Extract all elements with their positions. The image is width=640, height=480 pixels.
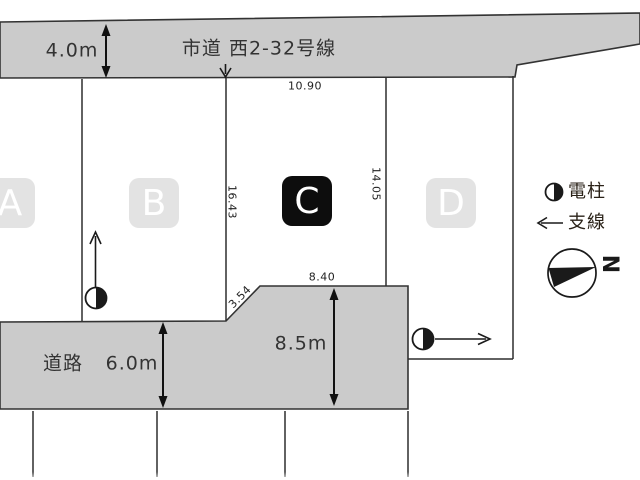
- lot-badge-d: D: [426, 178, 476, 228]
- bottom-fade: [0, 472, 640, 480]
- lot-c-label: C: [294, 181, 319, 222]
- dim-lot-c-left: 16.43: [227, 185, 238, 219]
- legend-pole-label: 電柱: [568, 183, 606, 201]
- dim-lot-c-top: 10.90: [288, 81, 322, 92]
- bottom-road-name-label: 道路: [43, 355, 83, 374]
- utility-pole-icon-fill: [96, 288, 107, 309]
- utility-pole-icon-fill: [423, 329, 433, 350]
- lot-badge-b: B: [129, 178, 179, 228]
- land-plot-diagram: 4.0m 市道 西2-32号線 10.90 16.43 14.05 8.40 3…: [0, 0, 640, 480]
- north-compass-icon: [548, 249, 596, 297]
- compass-north-label: N: [598, 255, 620, 273]
- lot-a-label: A: [0, 183, 22, 224]
- top-road-width-label: 4.0m: [46, 42, 99, 61]
- road-extension-width-label: 8.5m: [275, 335, 328, 354]
- lot-d-label: D: [437, 183, 465, 224]
- dim-lot-c-right: 14.05: [371, 167, 382, 201]
- top-road-name-label: 市道 西2-32号線: [182, 40, 336, 59]
- lot-boundaries: [33, 76, 513, 477]
- bottom-road-width-label: 6.0m: [106, 355, 159, 374]
- dim-lot-c-bottom: 8.40: [309, 272, 336, 283]
- lot-badge-c: C: [282, 176, 332, 226]
- legend-guy-wire-label: 支線: [568, 214, 606, 232]
- legend-icons: [538, 184, 563, 229]
- diagram-canvas: [0, 0, 640, 480]
- bottom-road-shape: [0, 286, 408, 409]
- lot-b-label: B: [142, 183, 167, 224]
- lot-badge-a: A: [0, 178, 35, 228]
